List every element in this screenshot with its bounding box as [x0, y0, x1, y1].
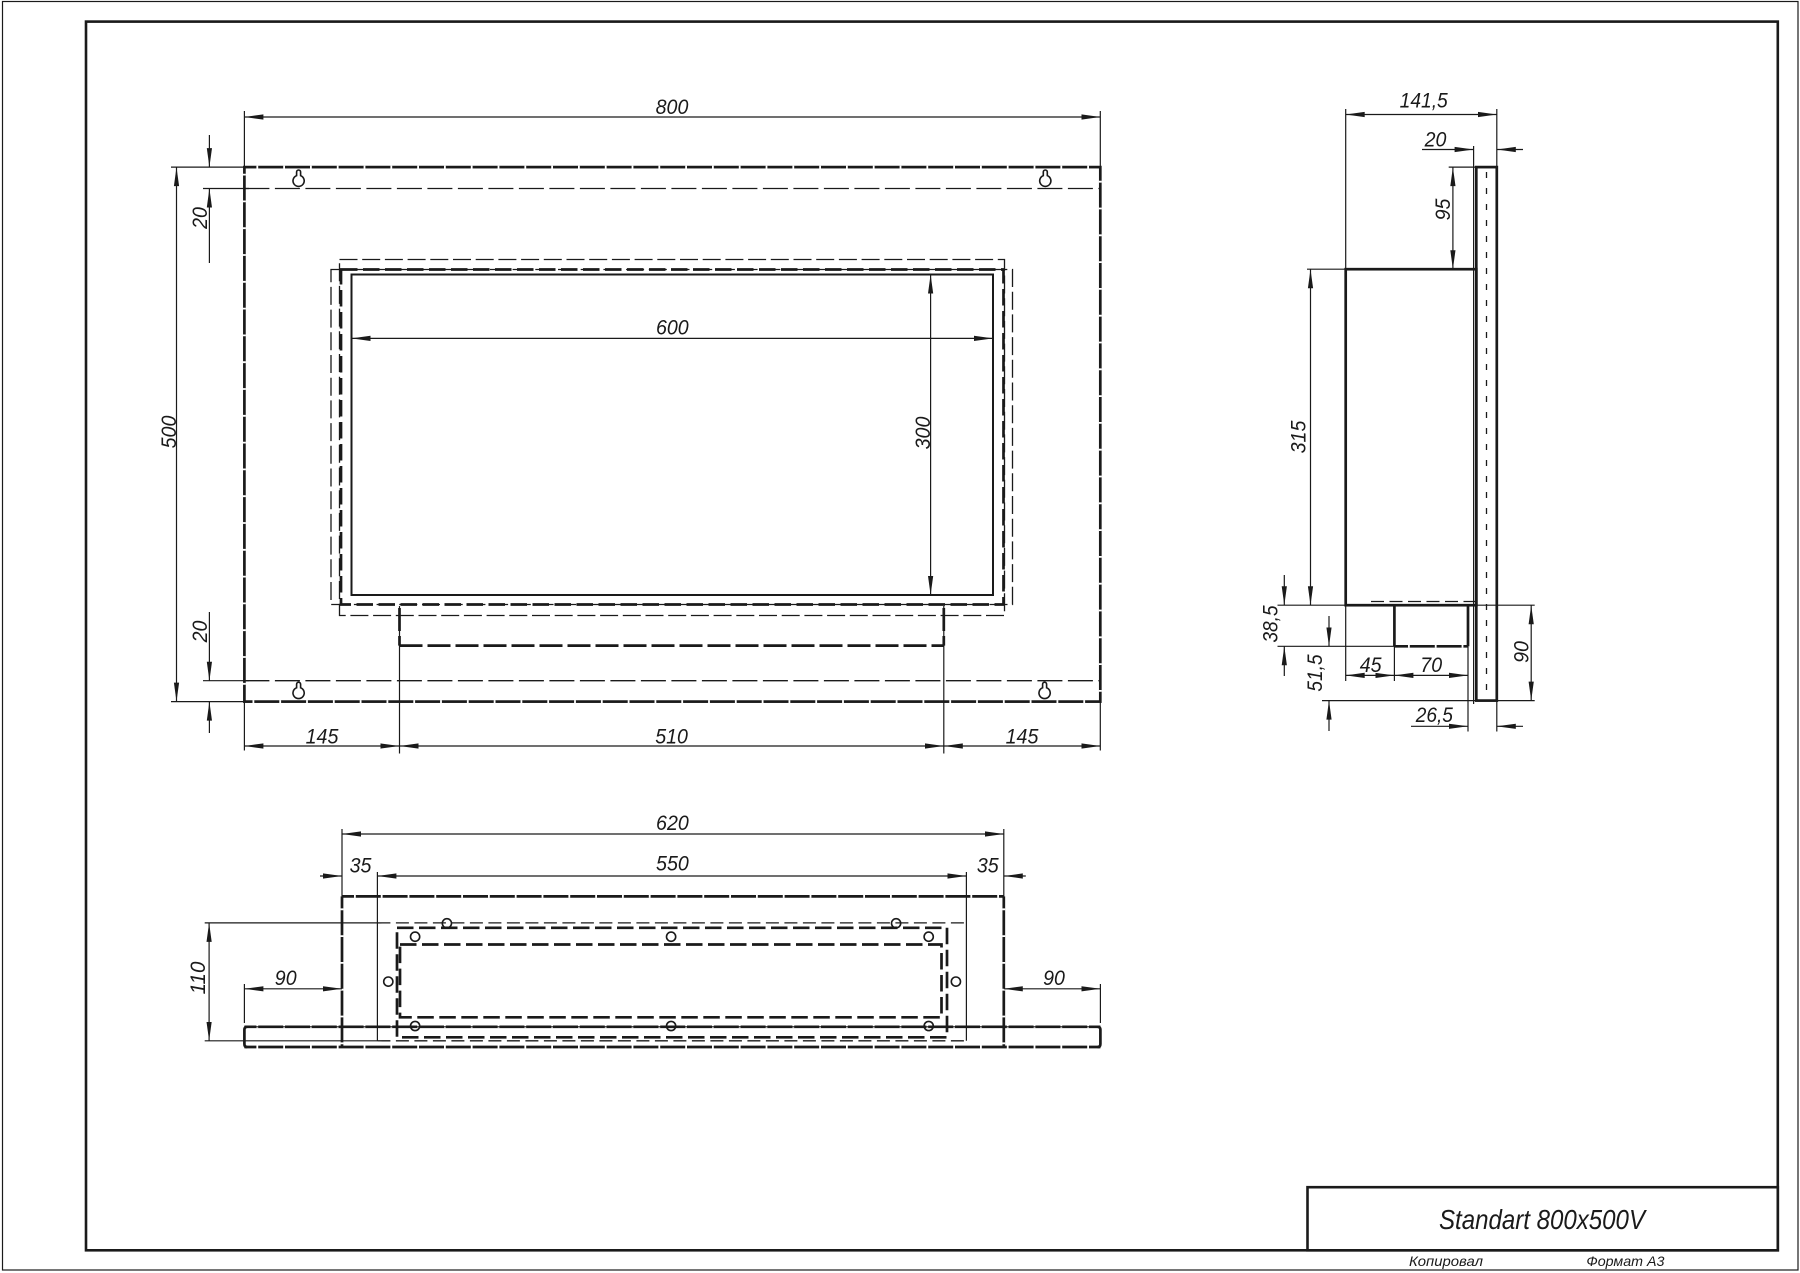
svg-text:35: 35 [350, 854, 373, 878]
svg-text:38,5: 38,5 [1259, 604, 1283, 642]
svg-text:315: 315 [1287, 420, 1311, 454]
svg-text:141,5: 141,5 [1400, 89, 1449, 113]
svg-text:110: 110 [186, 962, 210, 995]
svg-text:45: 45 [1360, 653, 1383, 677]
svg-text:26,5: 26,5 [1415, 703, 1454, 727]
svg-text:70: 70 [1420, 653, 1442, 677]
svg-text:Копировал: Копировал [1409, 1253, 1483, 1269]
svg-text:600: 600 [656, 316, 689, 340]
svg-text:300: 300 [911, 417, 935, 450]
svg-text:95: 95 [1431, 198, 1455, 221]
svg-text:90: 90 [1043, 966, 1065, 990]
svg-text:35: 35 [977, 854, 1000, 878]
svg-text:Standart 800x500V: Standart 800x500V [1439, 1204, 1647, 1235]
svg-text:500: 500 [157, 416, 181, 449]
svg-text:620: 620 [656, 811, 689, 835]
svg-text:90: 90 [1510, 641, 1534, 663]
svg-text:510: 510 [655, 725, 688, 749]
svg-text:550: 550 [656, 852, 689, 876]
svg-text:145: 145 [306, 725, 340, 749]
svg-text:90: 90 [275, 966, 297, 990]
svg-text:800: 800 [656, 95, 689, 119]
svg-text:20: 20 [188, 621, 212, 644]
svg-text:20: 20 [1424, 128, 1447, 152]
svg-text:Формат А3: Формат А3 [1586, 1253, 1664, 1269]
svg-text:20: 20 [188, 207, 212, 230]
svg-text:145: 145 [1006, 725, 1040, 749]
svg-text:51,5: 51,5 [1303, 653, 1327, 691]
